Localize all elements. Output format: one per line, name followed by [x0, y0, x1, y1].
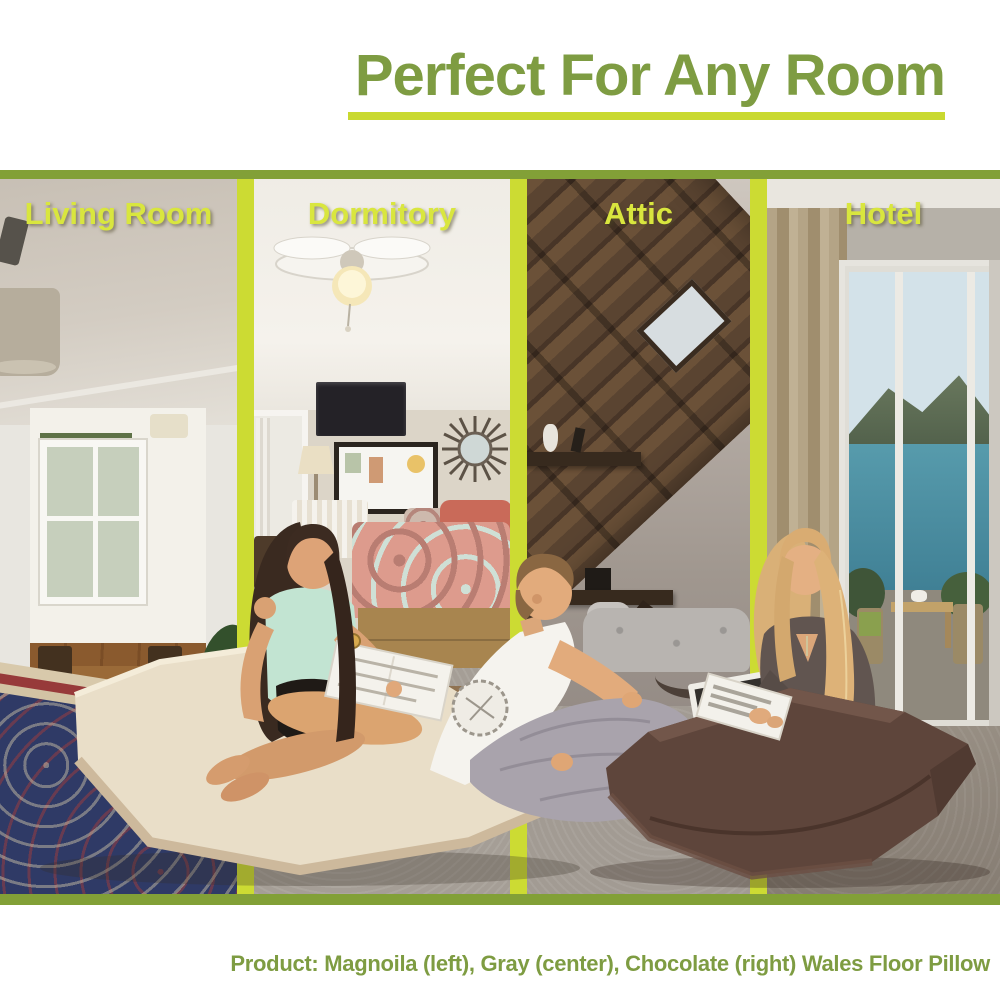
- product-image-canvas: Perfect For Any Room: [0, 0, 1000, 1000]
- foreground-figures: [0, 170, 1000, 905]
- title-underline: [348, 112, 945, 120]
- collage-top-border: [0, 170, 1000, 179]
- product-caption: Product: Magnoila (left), Gray (center),…: [230, 951, 990, 977]
- room-collage: Living Room: [0, 170, 1000, 905]
- collage-bottom-border: [0, 894, 1000, 905]
- page-title: Perfect For Any Room: [355, 42, 945, 109]
